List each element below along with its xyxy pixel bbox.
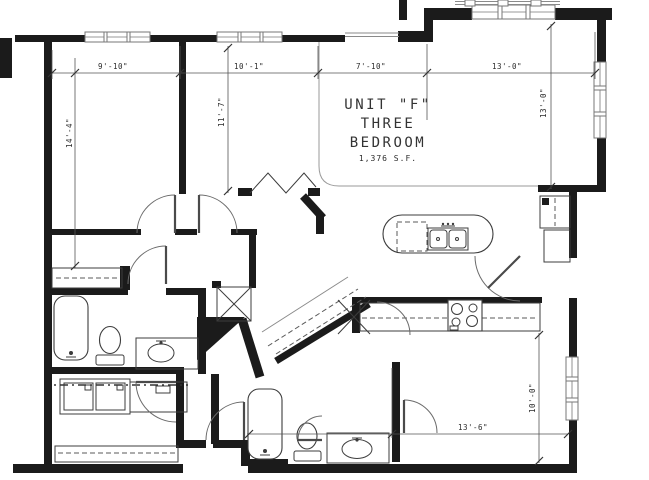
kitchen-island-icon xyxy=(383,215,493,253)
vanity-sink-icon xyxy=(136,338,198,369)
entry-door xyxy=(475,256,520,301)
laundry-area xyxy=(54,379,188,414)
floor-plan: UNIT "F" THREE BEDROOM 1,376 S.F. 9'-10"… xyxy=(0,0,649,480)
diamond-shelf-unit-icon xyxy=(217,287,251,321)
kitchen xyxy=(360,215,540,331)
master-bathroom xyxy=(248,389,389,463)
window-bedroom2-icon xyxy=(217,32,282,42)
floor-plan-drawing: UNIT "F" THREE BEDROOM 1,376 S.F. 9'-10"… xyxy=(0,0,649,480)
unit-subtitle-2: BEDROOM xyxy=(350,135,427,151)
dim-master-depth: 10'-0" xyxy=(528,383,537,413)
bedroom1-door xyxy=(137,195,175,233)
master-bedroom-door xyxy=(404,400,437,433)
dim-living-depth: 13'-0" xyxy=(539,88,548,118)
master-toilet-icon xyxy=(294,423,321,461)
window-master-right-icon xyxy=(566,357,578,420)
master-bathtub-icon xyxy=(248,389,282,459)
hall-linen-closet-icon xyxy=(52,268,122,288)
dim-bedroom1-width: 9'-10" xyxy=(98,62,128,71)
entry-closet-icon xyxy=(540,196,570,262)
hall-bathroom xyxy=(54,246,198,369)
washer-icon xyxy=(64,383,93,410)
toilet-icon xyxy=(96,327,124,366)
window-bedroom1-icon xyxy=(85,32,150,42)
bedroom2-bifold-closet-icon xyxy=(250,173,316,193)
window-living-top-icon xyxy=(472,5,555,19)
unit-title: UNIT "F" xyxy=(344,97,431,113)
bathroom-door xyxy=(128,246,166,284)
dryer-icon xyxy=(96,383,125,410)
master-vanity-sink-icon xyxy=(327,433,389,463)
dim-bedroom2-depth: 11'-7" xyxy=(217,97,226,127)
dim-foyer-width: 7'-10" xyxy=(356,62,386,71)
unit-area: 1,376 S.F. xyxy=(359,154,417,163)
windows xyxy=(85,5,606,420)
title-block: UNIT "F" THREE BEDROOM 1,376 S.F. xyxy=(344,97,431,163)
dim-living-width: 13'-0" xyxy=(492,62,522,71)
dim-master-width: 13'-6" xyxy=(458,423,488,432)
interior-walls xyxy=(44,42,542,466)
dim-bedroom2-width: 10'-1" xyxy=(234,62,264,71)
bathtub-icon xyxy=(54,296,88,360)
range-icon xyxy=(448,300,482,331)
dimension-lines xyxy=(48,22,599,465)
window-living-right-icon xyxy=(594,62,606,138)
unit-subtitle-1: THREE xyxy=(361,116,416,132)
bedroom2-door xyxy=(199,195,237,233)
den-closet-icon xyxy=(55,446,178,462)
dim-bedroom1-depth: 14'-4" xyxy=(65,118,74,148)
